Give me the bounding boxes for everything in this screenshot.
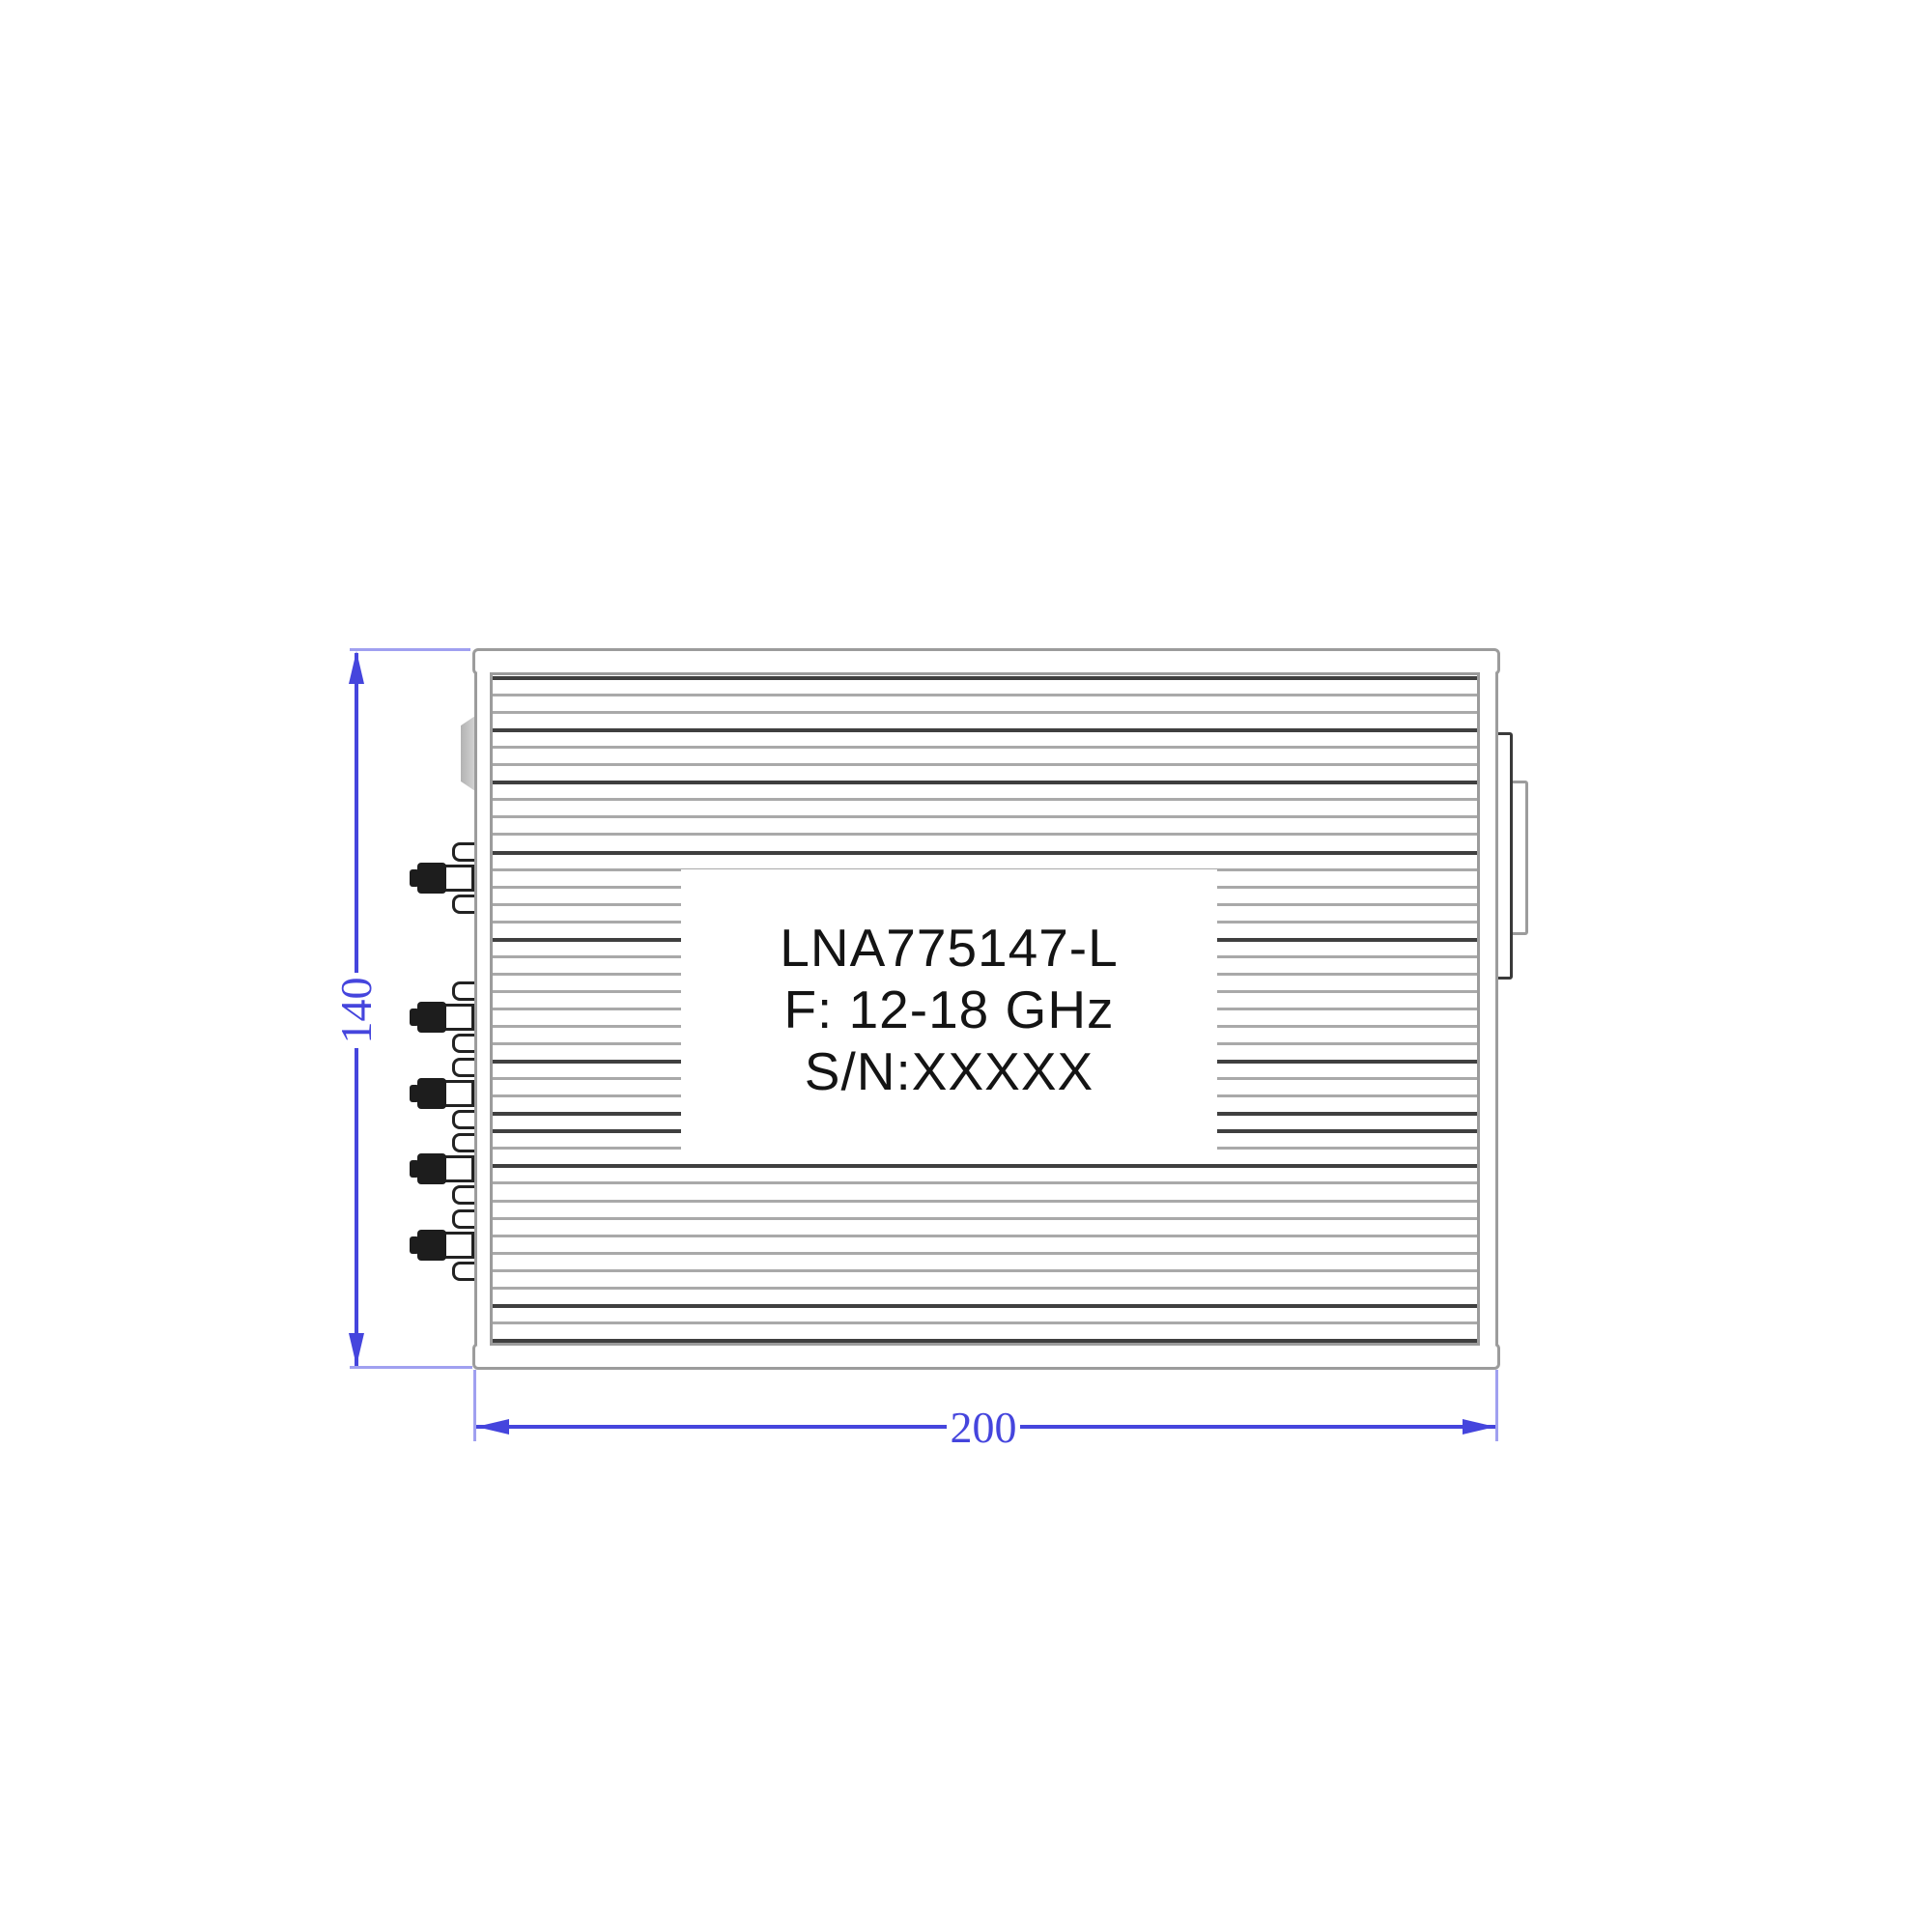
width-dim-line-left: [476, 1425, 947, 1429]
connector-flange-top: [452, 1209, 474, 1229]
height-dim-arrow-down: [349, 1333, 364, 1366]
fin-line: [492, 1287, 1477, 1290]
fin-line: [492, 1269, 1477, 1272]
connector-flange-bottom: [452, 895, 474, 914]
height-dim-label: 140: [331, 914, 382, 1107]
label-serial-text: S/N:XXXXX: [805, 1040, 1094, 1102]
sma-connector-5: [410, 1209, 475, 1281]
connector-nut: [417, 1078, 446, 1109]
fin-line: [492, 1235, 1477, 1237]
fin-line: [492, 798, 1477, 801]
width-dim-arrow-right: [1463, 1419, 1495, 1435]
connector-flange-top: [452, 1133, 474, 1152]
fin-line: [492, 1181, 1477, 1184]
connector-pin: [410, 869, 419, 887]
fin-line: [492, 815, 1477, 818]
fin-line: [492, 1217, 1477, 1220]
fin-line: [492, 694, 1477, 696]
connector-barrel: [443, 1232, 474, 1259]
fin-line: [492, 728, 1477, 732]
width-dim-label: 200: [887, 1403, 1080, 1453]
label-model-text: LNA775147-L: [780, 917, 1118, 979]
fin-line: [492, 1200, 1477, 1203]
fin-line: [492, 763, 1477, 766]
sma-connector-4: [410, 1133, 475, 1205]
connector-nut: [417, 1153, 446, 1184]
fin-line: [492, 1321, 1477, 1324]
connector-nut: [417, 1002, 446, 1033]
connector-pin: [410, 1236, 419, 1254]
fin-line: [492, 833, 1477, 836]
fin-line: [492, 851, 1477, 855]
connector-flange-top: [452, 1058, 474, 1077]
label-frequency-text: F: 12-18 GHz: [783, 979, 1114, 1040]
connector-flange-bottom: [452, 1185, 474, 1205]
sma-connector-2: [410, 981, 475, 1053]
top-lid: [472, 648, 1500, 675]
fin-line: [492, 746, 1477, 749]
connector-pin: [410, 1085, 419, 1102]
sma-connector-1: [410, 842, 475, 914]
connector-pin: [410, 1160, 419, 1178]
fin-line: [492, 676, 1477, 680]
fin-line: [492, 781, 1477, 784]
connector-nut: [417, 1230, 446, 1261]
height-ext-line-top: [350, 648, 470, 651]
device-label: LNA775147-L F: 12-18 GHz S/N:XXXXX: [681, 869, 1217, 1150]
connector-barrel: [443, 1080, 474, 1107]
fin-line: [492, 1252, 1477, 1255]
width-dim-line-right: [1020, 1425, 1495, 1429]
drawing-canvas: LNA775147-L F: 12-18 GHz S/N:XXXXX 140 2…: [0, 0, 1932, 1932]
bottom-lid: [472, 1343, 1500, 1370]
connector-flange-top: [452, 842, 474, 862]
connector-flange-bottom: [452, 1262, 474, 1281]
height-ext-line-bottom: [350, 1366, 472, 1369]
connector-flange-bottom: [452, 1034, 474, 1053]
connector-flange-bottom: [452, 1110, 474, 1129]
connector-pin: [410, 1009, 419, 1026]
connector-barrel: [443, 1004, 474, 1031]
width-dim-arrow-left: [476, 1419, 509, 1435]
connector-barrel: [443, 1155, 474, 1182]
width-ext-line-right: [1495, 1370, 1498, 1441]
sma-connector-3: [410, 1058, 475, 1129]
connector-nut: [417, 863, 446, 894]
right-wall: [1477, 672, 1498, 1346]
fin-line: [492, 1164, 1477, 1168]
fin-line: [492, 711, 1477, 714]
height-dim-arrow-up: [349, 651, 364, 684]
connector-barrel: [443, 865, 474, 892]
left-wall: [474, 672, 493, 1346]
left-mounting-tab: [461, 716, 475, 791]
fin-line: [492, 1304, 1477, 1308]
connector-flange-top: [452, 981, 474, 1001]
